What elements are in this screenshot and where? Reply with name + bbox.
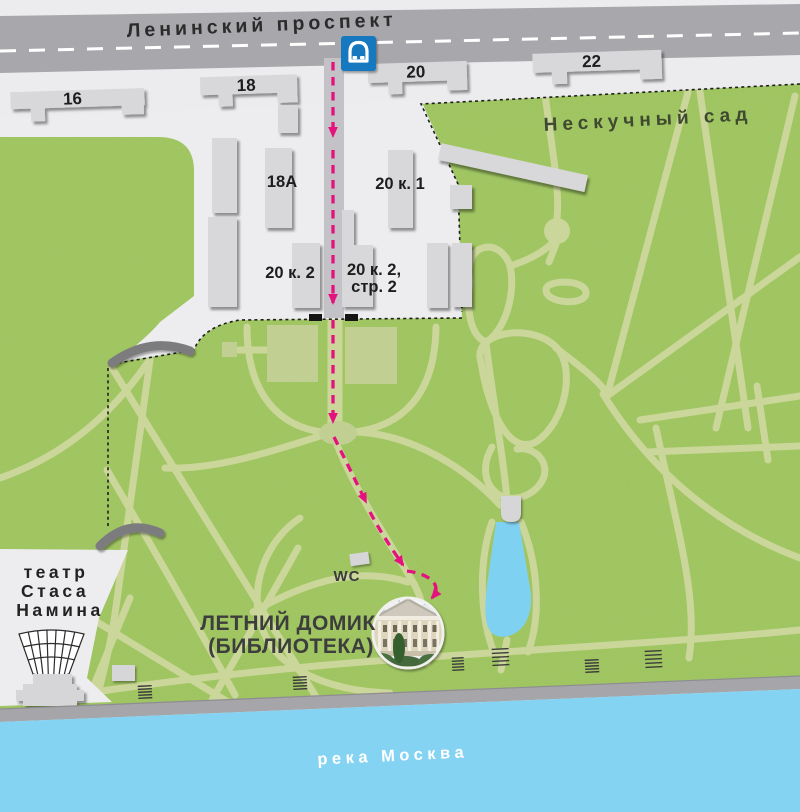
courtyard-slab-4 <box>452 243 472 307</box>
gate-marker-right <box>345 314 358 321</box>
theater-label-line2: Стаса <box>21 581 89 601</box>
park-edge-building <box>450 185 472 209</box>
route-map: Ленинский проспект 16 18 20 22 <box>0 0 800 812</box>
gate-marker-left <box>309 314 322 321</box>
building-20k1-label: 20 к. 1 <box>375 175 425 193</box>
building-20k2-label: 20 к. 2 <box>265 264 315 282</box>
building-18-label: 18 <box>236 76 256 96</box>
courtyard-slab-2 <box>208 217 237 307</box>
courtyard-slab-small <box>278 105 298 133</box>
small-building <box>112 665 135 681</box>
building-20k2s2-label-2: стр. 2 <box>351 278 397 296</box>
metro-station-icon <box>341 36 376 71</box>
building-16-label: 16 <box>63 89 83 109</box>
wc-label: WC <box>334 568 361 585</box>
destination-label-line2: (БИБЛИОТЕКА) <box>208 635 374 658</box>
sports-ground-2 <box>345 327 397 384</box>
courtyard-slab-1 <box>212 138 237 213</box>
small-court <box>222 342 237 357</box>
building-20-label: 20 <box>406 62 426 82</box>
sports-ground-1 <box>267 325 318 382</box>
theater-label-line3: Намина <box>16 600 103 620</box>
building-20k2s2-label-1: 20 к. 2, <box>347 261 401 279</box>
theater-label-line1: театр <box>24 562 89 582</box>
destination-label-line1: ЛЕТНИЙ ДОМИК <box>200 611 375 635</box>
fountain-pavilion <box>501 496 521 522</box>
courtyard-slab-3 <box>427 243 448 308</box>
building-22-label: 22 <box>582 52 602 72</box>
building-18a-label: 18А <box>267 173 297 191</box>
round-flowerbed <box>544 218 570 244</box>
